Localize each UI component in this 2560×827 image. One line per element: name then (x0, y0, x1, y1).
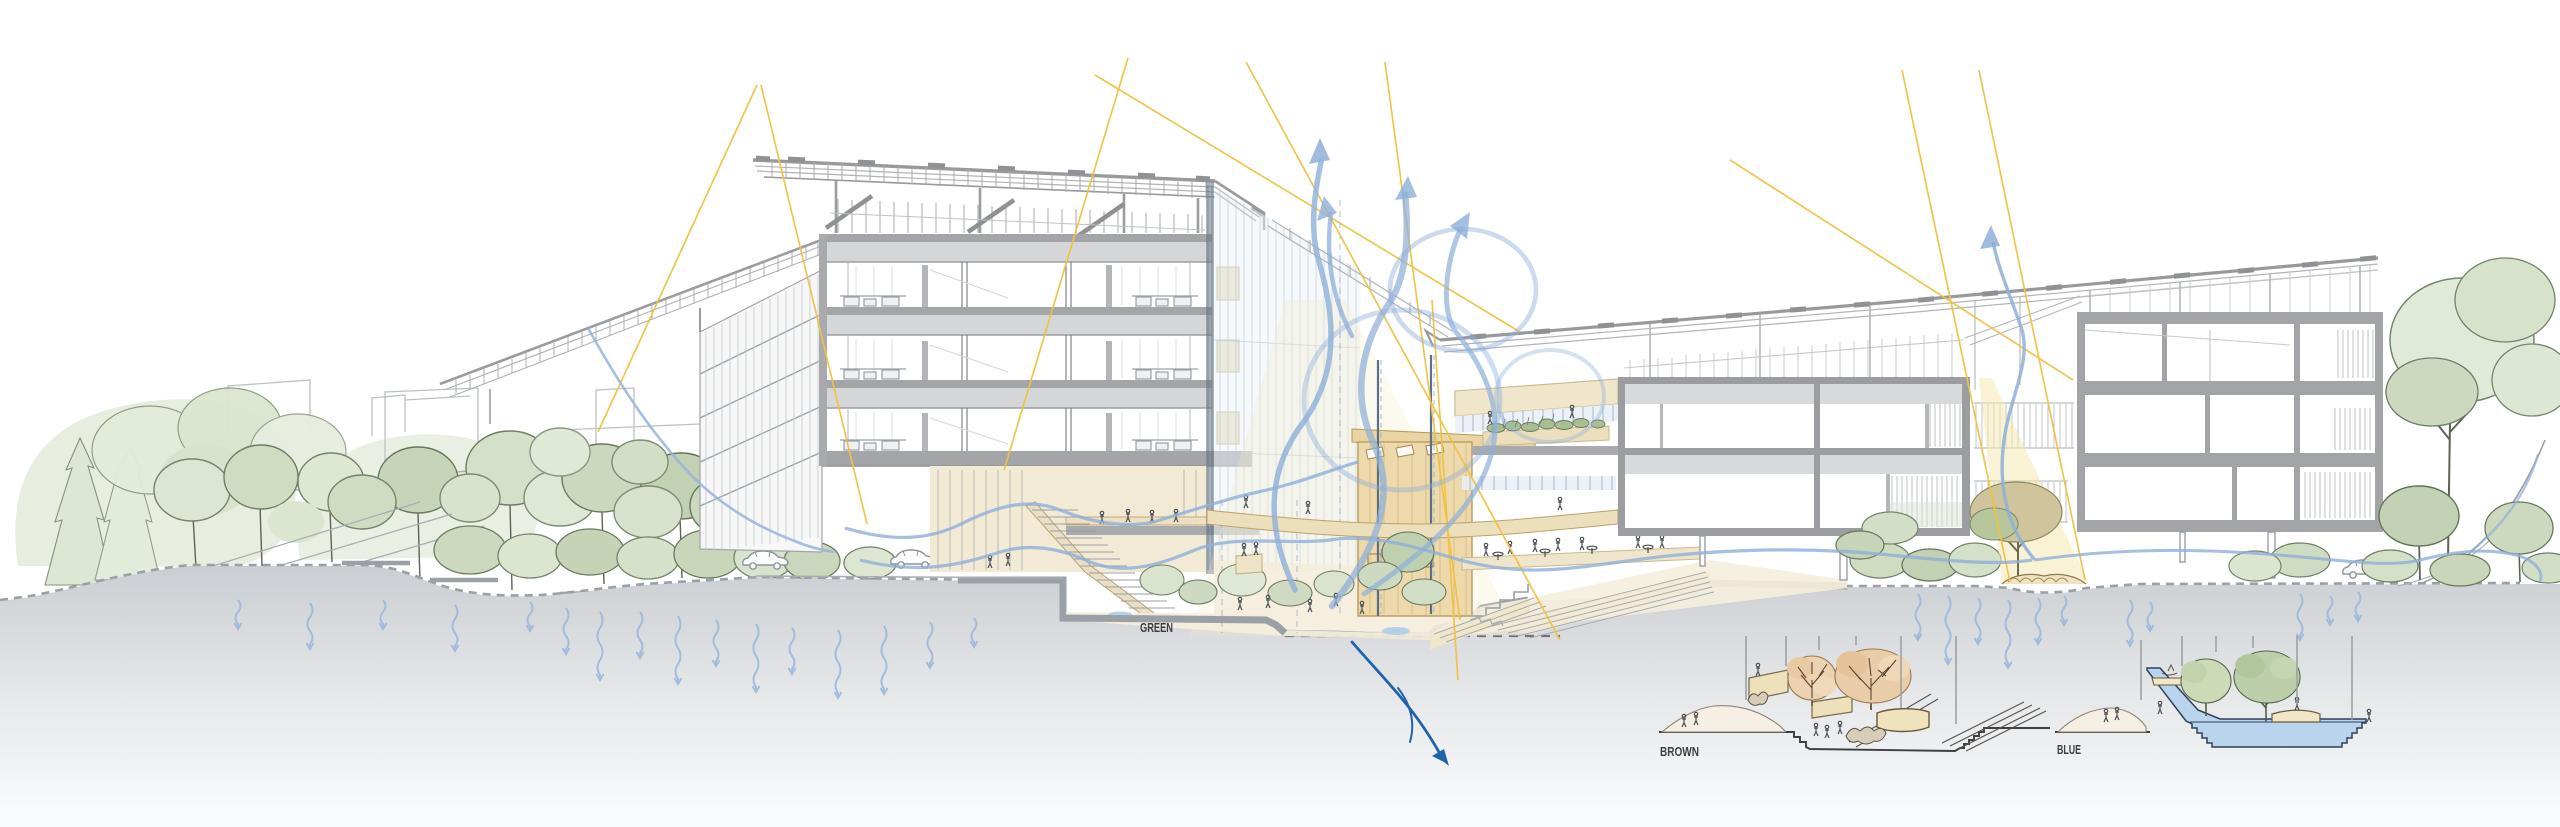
svg-text:BLUE: BLUE (2057, 742, 2081, 757)
svg-text:GREEN: GREEN (1140, 620, 1173, 635)
svg-text:BROWN: BROWN (1660, 744, 1699, 759)
